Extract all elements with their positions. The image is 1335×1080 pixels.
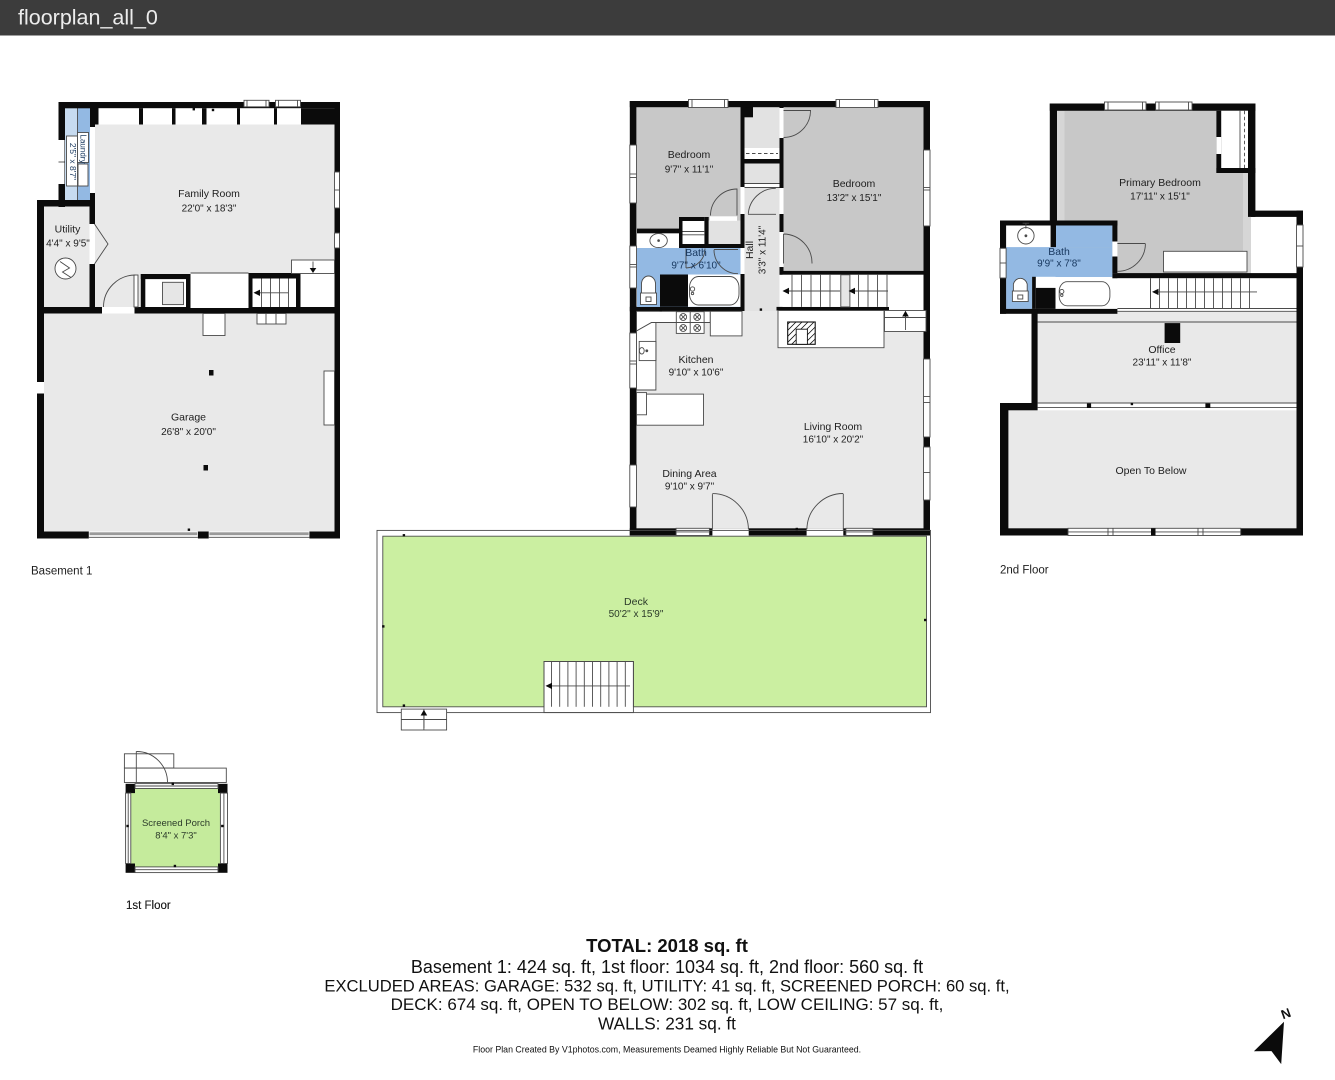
svg-text:Basement 1: Basement 1: [31, 566, 92, 578]
svg-text:9'7" x 11'1": 9'7" x 11'1": [665, 165, 714, 176]
svg-text:Primary Bedroom: Primary Bedroom: [1119, 177, 1201, 189]
svg-text:TOTAL: 2018 sq. ft: TOTAL: 2018 sq. ft: [586, 935, 748, 956]
svg-text:22'0" x 18'3": 22'0" x 18'3": [182, 204, 237, 215]
svg-text:Kitchen: Kitchen: [678, 354, 713, 366]
svg-text:WALLS: 231 sq. ft: WALLS: 231 sq. ft: [598, 1014, 736, 1034]
svg-text:Family Room: Family Room: [178, 188, 240, 200]
svg-text:Deck: Deck: [624, 596, 649, 608]
svg-text:9'9" x 7'8": 9'9" x 7'8": [1037, 259, 1081, 270]
svg-text:Garage: Garage: [171, 412, 206, 424]
svg-text:floorplan_all_0: floorplan_all_0: [18, 6, 158, 30]
svg-text:2nd Floor: 2nd Floor: [1000, 565, 1049, 577]
svg-text:17'11" x 15'1": 17'11" x 15'1": [1130, 192, 1190, 203]
svg-text:1st Floor: 1st Floor: [126, 900, 171, 912]
svg-text:26'8" x 20'0": 26'8" x 20'0": [161, 427, 216, 438]
svg-text:9'10" x 10'6": 9'10" x 10'6": [669, 368, 724, 379]
svg-text:Living Room: Living Room: [804, 421, 863, 433]
svg-text:9'10" x 9'7": 9'10" x 9'7": [665, 482, 715, 493]
svg-text:Laundry: Laundry: [79, 135, 88, 164]
svg-text:50'2" x 15'9": 50'2" x 15'9": [609, 609, 664, 620]
svg-text:3'3" x 11'4": 3'3" x 11'4": [758, 225, 769, 274]
svg-text:Dining Area: Dining Area: [662, 468, 716, 480]
svg-text:2'5" x 8'7": 2'5" x 8'7": [68, 143, 78, 180]
svg-text:Floor Plan Created By V1photos: Floor Plan Created By V1photos.com, Meas…: [473, 1045, 861, 1055]
svg-text:Utility: Utility: [55, 224, 81, 236]
svg-text:9'7" x 6'10": 9'7" x 6'10": [671, 261, 721, 272]
svg-text:Basement 1: 424 sq. ft, 1st fl: Basement 1: 424 sq. ft, 1st floor: 1034 …: [411, 957, 923, 977]
svg-text:Bedroom: Bedroom: [833, 178, 876, 190]
svg-text:EXCLUDED AREAS: GARAGE: 532 sq: EXCLUDED AREAS: GARAGE: 532 sq. ft, UTIL…: [324, 977, 1009, 996]
svg-text:Screened Porch: Screened Porch: [142, 818, 210, 829]
svg-text:Bath: Bath: [1048, 246, 1070, 258]
svg-text:Open To Below: Open To Below: [1115, 465, 1186, 477]
svg-text:16'10" x 20'2": 16'10" x 20'2": [803, 435, 864, 446]
svg-text:23'11" x 11'8": 23'11" x 11'8": [1133, 358, 1192, 369]
svg-text:13'2" x 15'1": 13'2" x 15'1": [827, 193, 882, 204]
svg-text:Bedroom: Bedroom: [668, 149, 711, 161]
svg-text:Bath: Bath: [685, 247, 707, 259]
svg-text:Office: Office: [1148, 344, 1175, 356]
svg-text:DECK: 674 sq. ft, OPEN TO BELO: DECK: 674 sq. ft, OPEN TO BELOW: 302 sq.…: [391, 995, 944, 1014]
svg-text:4'4" x 9'5": 4'4" x 9'5": [46, 239, 90, 250]
svg-text:Hall: Hall: [744, 241, 756, 259]
svg-text:8'4" x 7'3": 8'4" x 7'3": [155, 831, 197, 842]
